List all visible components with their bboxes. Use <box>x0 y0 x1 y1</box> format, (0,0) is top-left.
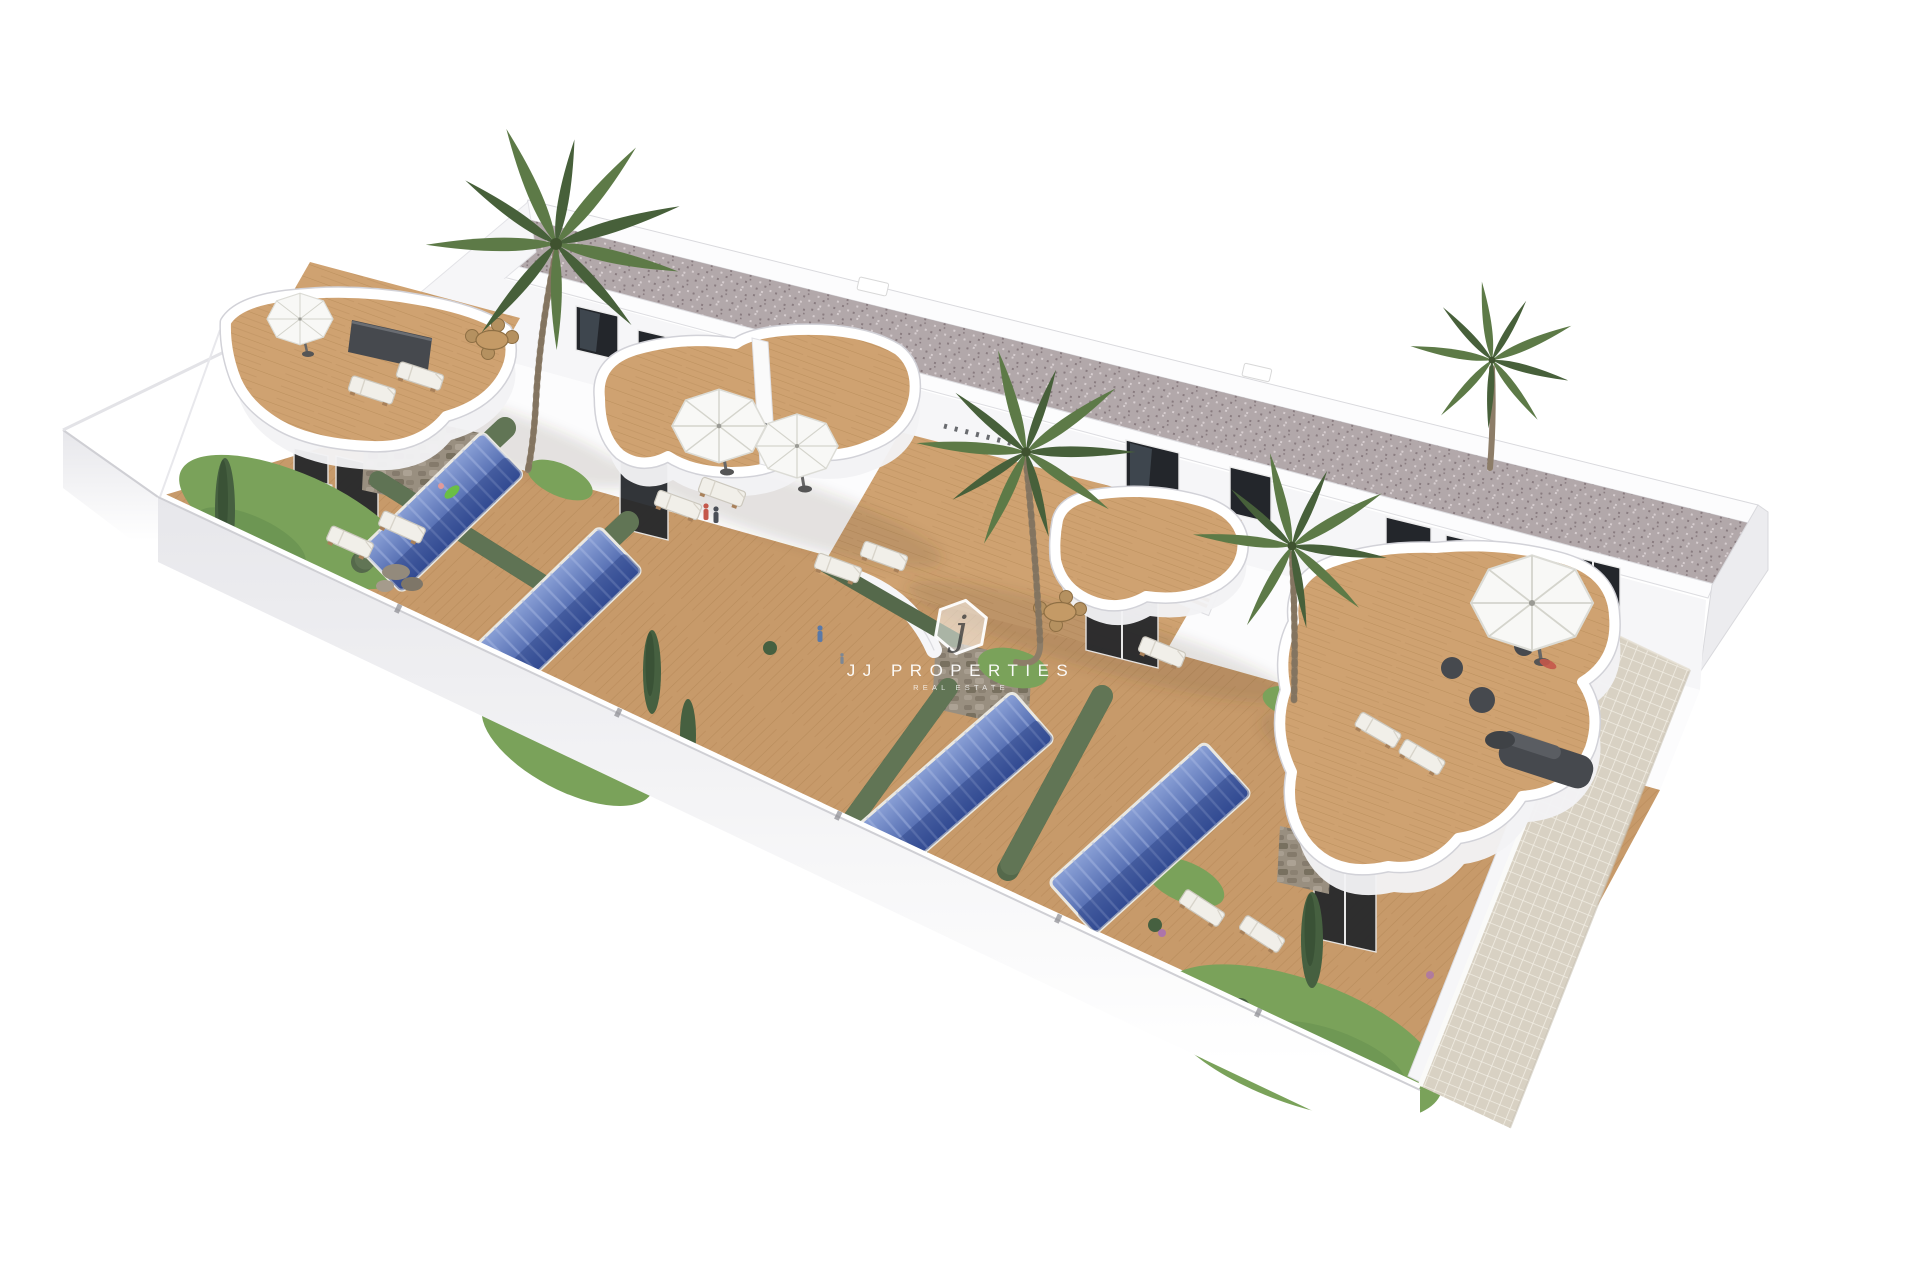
person <box>703 503 708 520</box>
swimmer <box>438 483 444 489</box>
left-wall-face <box>63 430 158 560</box>
back-left-wall-edge <box>63 352 224 430</box>
person <box>817 625 822 642</box>
watermark-tagline-text: REAL ESTATE <box>913 683 1009 692</box>
watermark-brand-text: JJ PROPERTIES <box>847 661 1076 680</box>
person <box>713 506 718 523</box>
render-canvas: j JJ PROPERTIES REAL ESTATE <box>0 0 1920 1280</box>
property-render-3d: j JJ PROPERTIES REAL ESTATE <box>0 0 1920 1280</box>
child <box>840 653 843 664</box>
coffee-table <box>1485 731 1515 749</box>
